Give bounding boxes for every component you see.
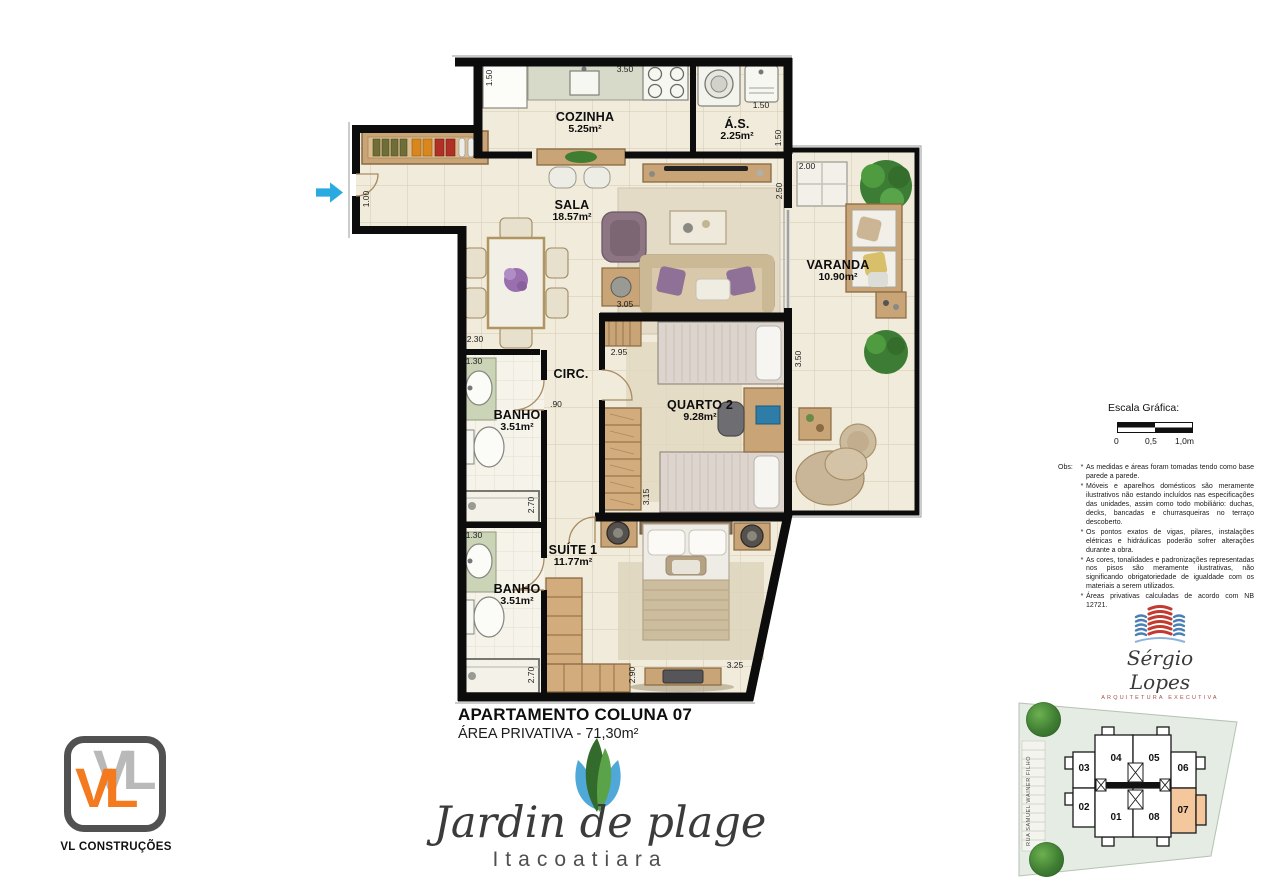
keyplan-unit-08: 08 <box>1143 812 1165 823</box>
street-name: RUA SAMUEL WAINER FILHO <box>1026 734 1032 846</box>
architect-logo: Sérgio Lopes Arquitetura Executiva <box>1095 603 1225 701</box>
architect-name: Sérgio Lopes <box>1095 646 1225 694</box>
keyplan-unit-02: 02 <box>1073 802 1095 813</box>
dim-as-right: 1.50 <box>773 125 783 151</box>
dim-dining: 2.30 <box>462 334 488 344</box>
dim-circ-width: .90 <box>543 399 569 409</box>
development-name: Jardin de plage <box>420 798 780 848</box>
keyplan-unit-05: 05 <box>1143 753 1165 764</box>
floorplan-sheet: COZINHA5.25m² Á.S.2.25m² SALA18.57m² VAR… <box>0 0 1265 889</box>
dim-banho1-width: 1.30 <box>461 356 487 366</box>
keyplan-unit-03: 03 <box>1073 763 1095 774</box>
dim-sala-bottom: 3.05 <box>612 299 638 309</box>
dim-sala-right: 2.50 <box>774 178 784 204</box>
dim-varanda-left: 3.50 <box>793 346 803 372</box>
builder-logo: VL VL <box>64 736 166 832</box>
dim-banho1-height: 2.70 <box>526 492 536 518</box>
dim-quarto2-left: 3.15 <box>641 484 651 510</box>
scale-label-05: 0,5 <box>1145 436 1175 446</box>
keyplan-unit-01: 01 <box>1105 812 1127 823</box>
dim-suite-diagonal: 3.25 <box>722 660 748 670</box>
tree-icon-bottom <box>1029 842 1064 877</box>
scale-label-1m: 1,0m <box>1175 436 1205 446</box>
dim-entry: 1.00 <box>361 186 371 212</box>
dim-varanda-top: 2.00 <box>794 161 820 171</box>
scale-bar <box>1117 422 1193 433</box>
builder-name: VL CONSTRUÇÕES <box>46 841 186 853</box>
scale-title: Escala Gráfica: <box>1108 402 1198 414</box>
keyplan-unit-07-highlight: 07 <box>1172 805 1194 816</box>
scale-label-0: 0 <box>1114 436 1144 446</box>
dim-suite-bottom: 2.90 <box>627 662 637 688</box>
dim-kitchen-left: 1.50 <box>484 65 494 91</box>
development-location: Itacoatiara <box>440 848 720 872</box>
observations: Obs:*As medidas e áreas foram tomadas te… <box>1058 464 1254 612</box>
dim-as-width: 1.50 <box>748 100 774 110</box>
dim-quarto2-top: 2.95 <box>606 347 632 357</box>
entry-shelf <box>362 131 488 164</box>
keyplan-unit-04: 04 <box>1105 753 1127 764</box>
dim-banho2-height: 2.70 <box>526 662 536 688</box>
architect-building-icon <box>1133 603 1187 645</box>
dim-banho2-width: 1.30 <box>461 530 487 540</box>
apartment-title: APARTAMENTO COLUNA 07 <box>458 705 692 725</box>
keyplan-unit-06: 06 <box>1172 763 1194 774</box>
tree-icon-top <box>1026 702 1061 737</box>
builder-monogram-front: VL <box>75 755 131 820</box>
dim-kitchen-top: 3.50 <box>612 64 638 74</box>
